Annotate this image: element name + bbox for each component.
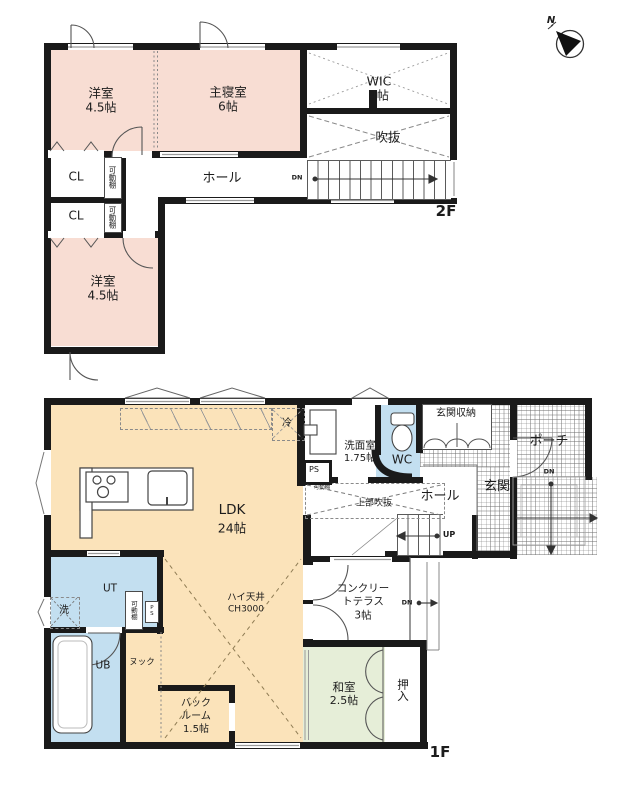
label-shelf-ut: 可動棚 [130,600,137,620]
room-label-yoshitsu-a: 洋室 [88,86,113,99]
side-steps [427,562,439,650]
room-label-cl-a: CL [68,171,83,184]
room-label-washitsu: 和室 [333,681,356,693]
casement-window-icon [36,452,44,626]
label-ps-ut: PS [148,605,154,617]
label-washer: 洗 [59,606,69,617]
room-size-yoshitsu-b: 4.5帖 [87,290,118,303]
label-upper-void: 上部吹抜 [356,499,392,508]
room-label-void-2f: 吹抜 [375,130,400,143]
label-dn-side: DN [402,600,413,607]
room-size-washitsu: 2.5帖 [330,695,359,707]
label-shelf-2f-b: 可動棚 [108,206,116,229]
vanity-icon [304,410,336,454]
room-label-laundry: 洗面室 [344,440,376,451]
label-fridge: 冷 [282,419,292,430]
label-high-ceiling: ハイ天井 [227,593,265,603]
room-size-backroom: 1.5帖 [183,725,209,736]
room-label-entry: 玄関 [484,480,510,494]
room-label-terrace-2: トテラス [342,596,384,607]
room-label-yoshitsu-b: 洋室 [90,274,115,287]
room-size-master: 6帖 [218,101,238,114]
room-label-ut: UT [103,583,117,594]
room-wc [376,405,420,478]
room-label-ub: UB [96,660,111,671]
room-size-wic: 4帖 [369,90,389,103]
room-label-terrace-1: コンクリー [337,583,390,594]
room-label-hall-1f: ホール [420,490,459,504]
room-label-hall-2f: ホール [202,172,241,186]
room-label-oshiire: 押入 [397,679,409,702]
window-awning-icon [125,388,388,398]
floor2-label: 2F [436,204,457,220]
label-entry-storage: 玄関収納 [436,409,476,420]
room-size-terrace: 3帖 [354,610,371,621]
room-label-backroom-2: ルーム [181,712,211,723]
understair-line [352,519,396,555]
room-label-cl-b: CL [68,210,83,223]
label-up: UP [443,531,455,539]
room-label-wic: WIC [367,74,392,87]
label-shelf-hall: 可動棚 [314,486,331,492]
room-label-wc: WC [392,454,412,467]
room-label-master: 主寝室 [209,85,247,98]
kitchen-cabinet-band [120,408,272,430]
stairs-2f [307,160,451,200]
label-high-ceiling-ch: CH3000 [228,605,264,614]
room-label-ldk: LDK [219,503,246,517]
room-label-nook: ヌック [129,659,155,668]
room-label-backroom-1: バック [181,699,211,710]
room-size-laundry: 1.75帖 [344,454,376,465]
porch-steps [513,477,597,555]
floor-plan: 洋室 4.5帖 主寝室 6帖 WIC 4帖 吹抜 ホール DN CL CL 可動… [0,0,631,804]
label-ps-hall: PS [309,466,319,474]
room-size-yoshitsu-a: 4.5帖 [85,102,116,115]
room-label-porch: ポーチ [529,435,568,449]
room-ub [48,629,124,742]
floor1-label: 1F [430,745,451,761]
compass-icon [548,22,584,58]
label-shelf-2f-a: 可動棚 [108,166,116,189]
compass-n-label: N [547,16,555,27]
label-dn-2f: DN [292,175,303,182]
label-dn-porch: DN [544,469,555,476]
room-size-ldk: 24帖 [218,521,246,534]
stairs-1f [397,514,443,556]
